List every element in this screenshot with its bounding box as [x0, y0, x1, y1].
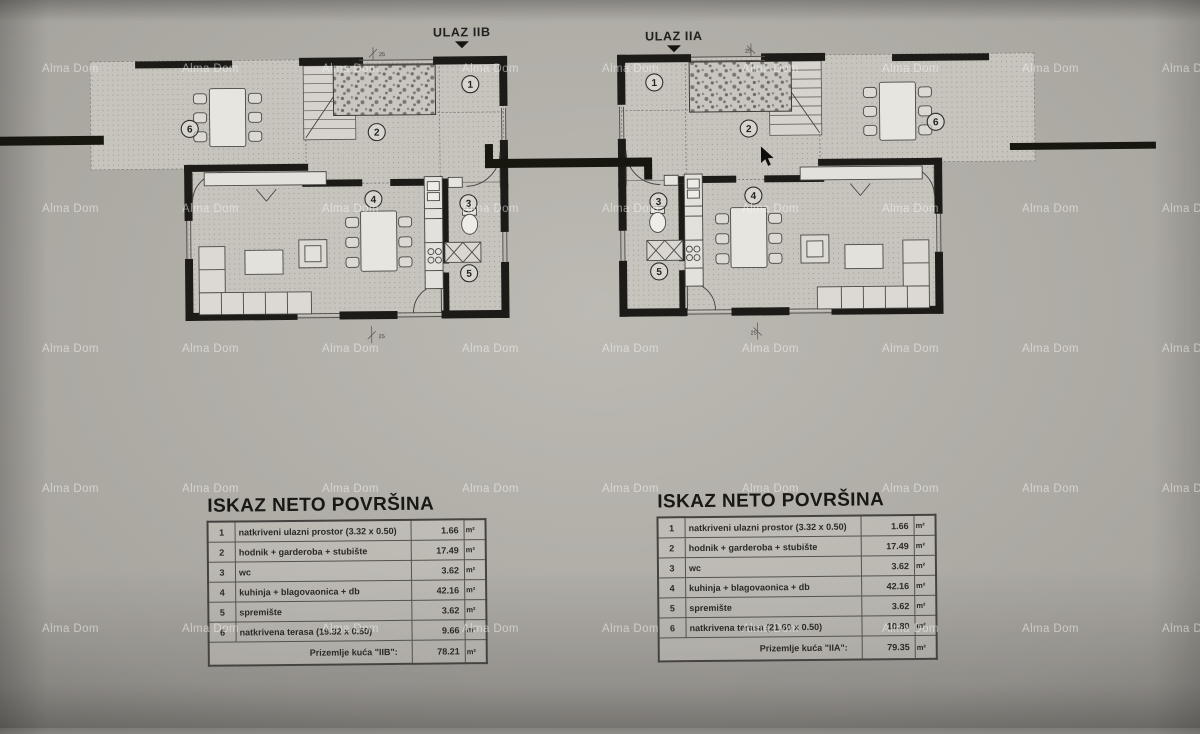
- row-value: 9.66: [412, 620, 465, 641]
- entrance-label-text: ULAZ IIB: [433, 25, 491, 40]
- dimension-label: 25: [379, 52, 385, 58]
- room-number: 2: [374, 128, 380, 139]
- row-value: 3.62: [862, 595, 915, 616]
- room-number: 5: [656, 267, 662, 278]
- room-number: 4: [751, 191, 757, 202]
- row-value: 42.16: [412, 580, 465, 601]
- room-number: 2: [746, 124, 752, 135]
- row-value: 10.80: [862, 615, 915, 636]
- row-number: 2: [208, 542, 236, 562]
- row-unit: m²: [914, 555, 936, 575]
- table-row: 2 hodnik + garderoba + stubište 17.49 m²: [208, 540, 486, 563]
- table-row: 5 spremište 3.62 m²: [658, 595, 936, 618]
- row-description: spremište: [236, 600, 412, 622]
- row-value: 1.66: [861, 515, 914, 536]
- table-row: 5 spremište 3.62 m²: [208, 600, 486, 623]
- entrance-label-text: ULAZ IIA: [645, 29, 703, 44]
- scene: ULAZ IIB ULAZ IIA: [0, 0, 1200, 734]
- row-value: 17.49: [861, 535, 914, 556]
- room-number: 3: [656, 197, 662, 208]
- row-value: 3.62: [861, 555, 914, 576]
- table-row: 3 wc 3.62 m²: [658, 555, 936, 578]
- row-number: 2: [658, 538, 686, 558]
- row-number: 3: [658, 558, 686, 578]
- row-description: natkriveni ulazni prostor (3.32 x 0.50): [235, 520, 411, 542]
- row-number: 1: [207, 522, 235, 543]
- row-description: hodnik + garderoba + stubište: [685, 536, 861, 558]
- row-description: kuhinja + blagovaonica + db: [686, 576, 862, 598]
- row-number: 6: [658, 618, 686, 638]
- room-number: 5: [466, 269, 472, 280]
- row-number: 4: [658, 578, 686, 598]
- row-unit: m²: [914, 515, 936, 536]
- row-description: natkrivena terasa (21.60 x 0.50): [686, 616, 862, 638]
- footer-label: Prizemlje kuća "IIB":: [209, 640, 413, 665]
- row-description: spremište: [686, 596, 862, 618]
- dimension-label: 25: [751, 330, 757, 336]
- row-number: 5: [208, 602, 236, 622]
- row-unit: m²: [464, 560, 486, 580]
- row-description: natkrivena terasa (19.32 x 0.50): [236, 620, 412, 642]
- row-unit: m²: [915, 615, 937, 635]
- room-number: 4: [371, 195, 377, 206]
- table-row: 3 wc 3.62 m²: [208, 560, 486, 583]
- row-description: hodnik + garderoba + stubište: [235, 540, 411, 562]
- row-number: 1: [657, 517, 685, 538]
- row-unit: m²: [464, 540, 486, 560]
- row-description: kuhinja + blagovaonica + db: [236, 580, 412, 602]
- row-value: 17.49: [411, 540, 464, 561]
- floorplan-photo: { "watermark": "Alma Dom", "plans": [ { …: [0, 0, 1200, 728]
- room-number: 1: [467, 80, 473, 91]
- floor-plans-drawing: 1 2 3 4 5 6 25 25 1 2 3 4 5 6 25 25: [0, 39, 1200, 361]
- room-number: 6: [933, 117, 939, 128]
- table-row: 1 natkriveni ulazni prostor (3.32 x 0.50…: [207, 519, 485, 542]
- row-description: wc: [685, 556, 861, 578]
- dimension-label: 25: [379, 334, 385, 340]
- table-row: 1 natkriveni ulazni prostor (3.32 x 0.50…: [657, 515, 935, 538]
- table-title: ISKAZ NETO POVRŠINA: [657, 489, 936, 514]
- area-table-iia: ISKAZ NETO POVRŠINA 1 natkriveni ulazni …: [656, 489, 938, 663]
- row-unit: m²: [914, 535, 936, 555]
- dimension-label: 25: [745, 49, 751, 55]
- row-number: 6: [208, 622, 236, 642]
- area-table-iib: ISKAZ NETO POVRŠINA 1 natkriveni ulazni …: [206, 493, 488, 667]
- row-number: 5: [658, 598, 686, 618]
- footer-label: Prizemlje kuća "IIA":: [659, 636, 863, 661]
- row-description: wc: [235, 560, 411, 582]
- row-number: 3: [208, 562, 236, 582]
- footer-value: 78.21: [412, 640, 465, 664]
- row-description: natkriveni ulazni prostor (3.32 x 0.50): [685, 516, 861, 538]
- room-number: 3: [466, 199, 472, 210]
- row-unit: m²: [915, 575, 937, 595]
- table-footer-row: Prizemlje kuća "IIB": 78.21 m²: [209, 640, 487, 666]
- footer-value: 79.35: [862, 635, 915, 659]
- row-unit: m²: [465, 640, 487, 664]
- row-number: 4: [208, 582, 236, 602]
- table-footer-row: Prizemlje kuća "IIA": 79.35 m²: [659, 635, 937, 661]
- room-number: 1: [651, 78, 657, 89]
- table-row: 6 natkrivena terasa (21.60 x 0.50) 10.80…: [658, 615, 936, 638]
- row-value: 42.16: [862, 575, 915, 596]
- row-unit: m²: [465, 600, 487, 620]
- row-value: 3.62: [411, 560, 464, 581]
- table-row: 6 natkrivena terasa (19.32 x 0.50) 9.66 …: [208, 620, 486, 643]
- table-row: 4 kuhinja + blagovaonica + db 42.16 m²: [658, 575, 936, 598]
- row-unit: m²: [915, 595, 937, 615]
- row-unit: m²: [465, 620, 487, 640]
- row-value: 1.66: [411, 519, 464, 540]
- row-unit: m²: [464, 519, 486, 540]
- table-row: 4 kuhinja + blagovaonica + db 42.16 m²: [208, 580, 486, 603]
- room-number: 6: [187, 124, 193, 135]
- row-value: 3.62: [412, 600, 465, 621]
- row-unit: m²: [915, 635, 937, 659]
- table-row: 2 hodnik + garderoba + stubište 17.49 m²: [658, 535, 936, 558]
- table-title: ISKAZ NETO POVRŠINA: [207, 493, 486, 518]
- row-unit: m²: [465, 580, 487, 600]
